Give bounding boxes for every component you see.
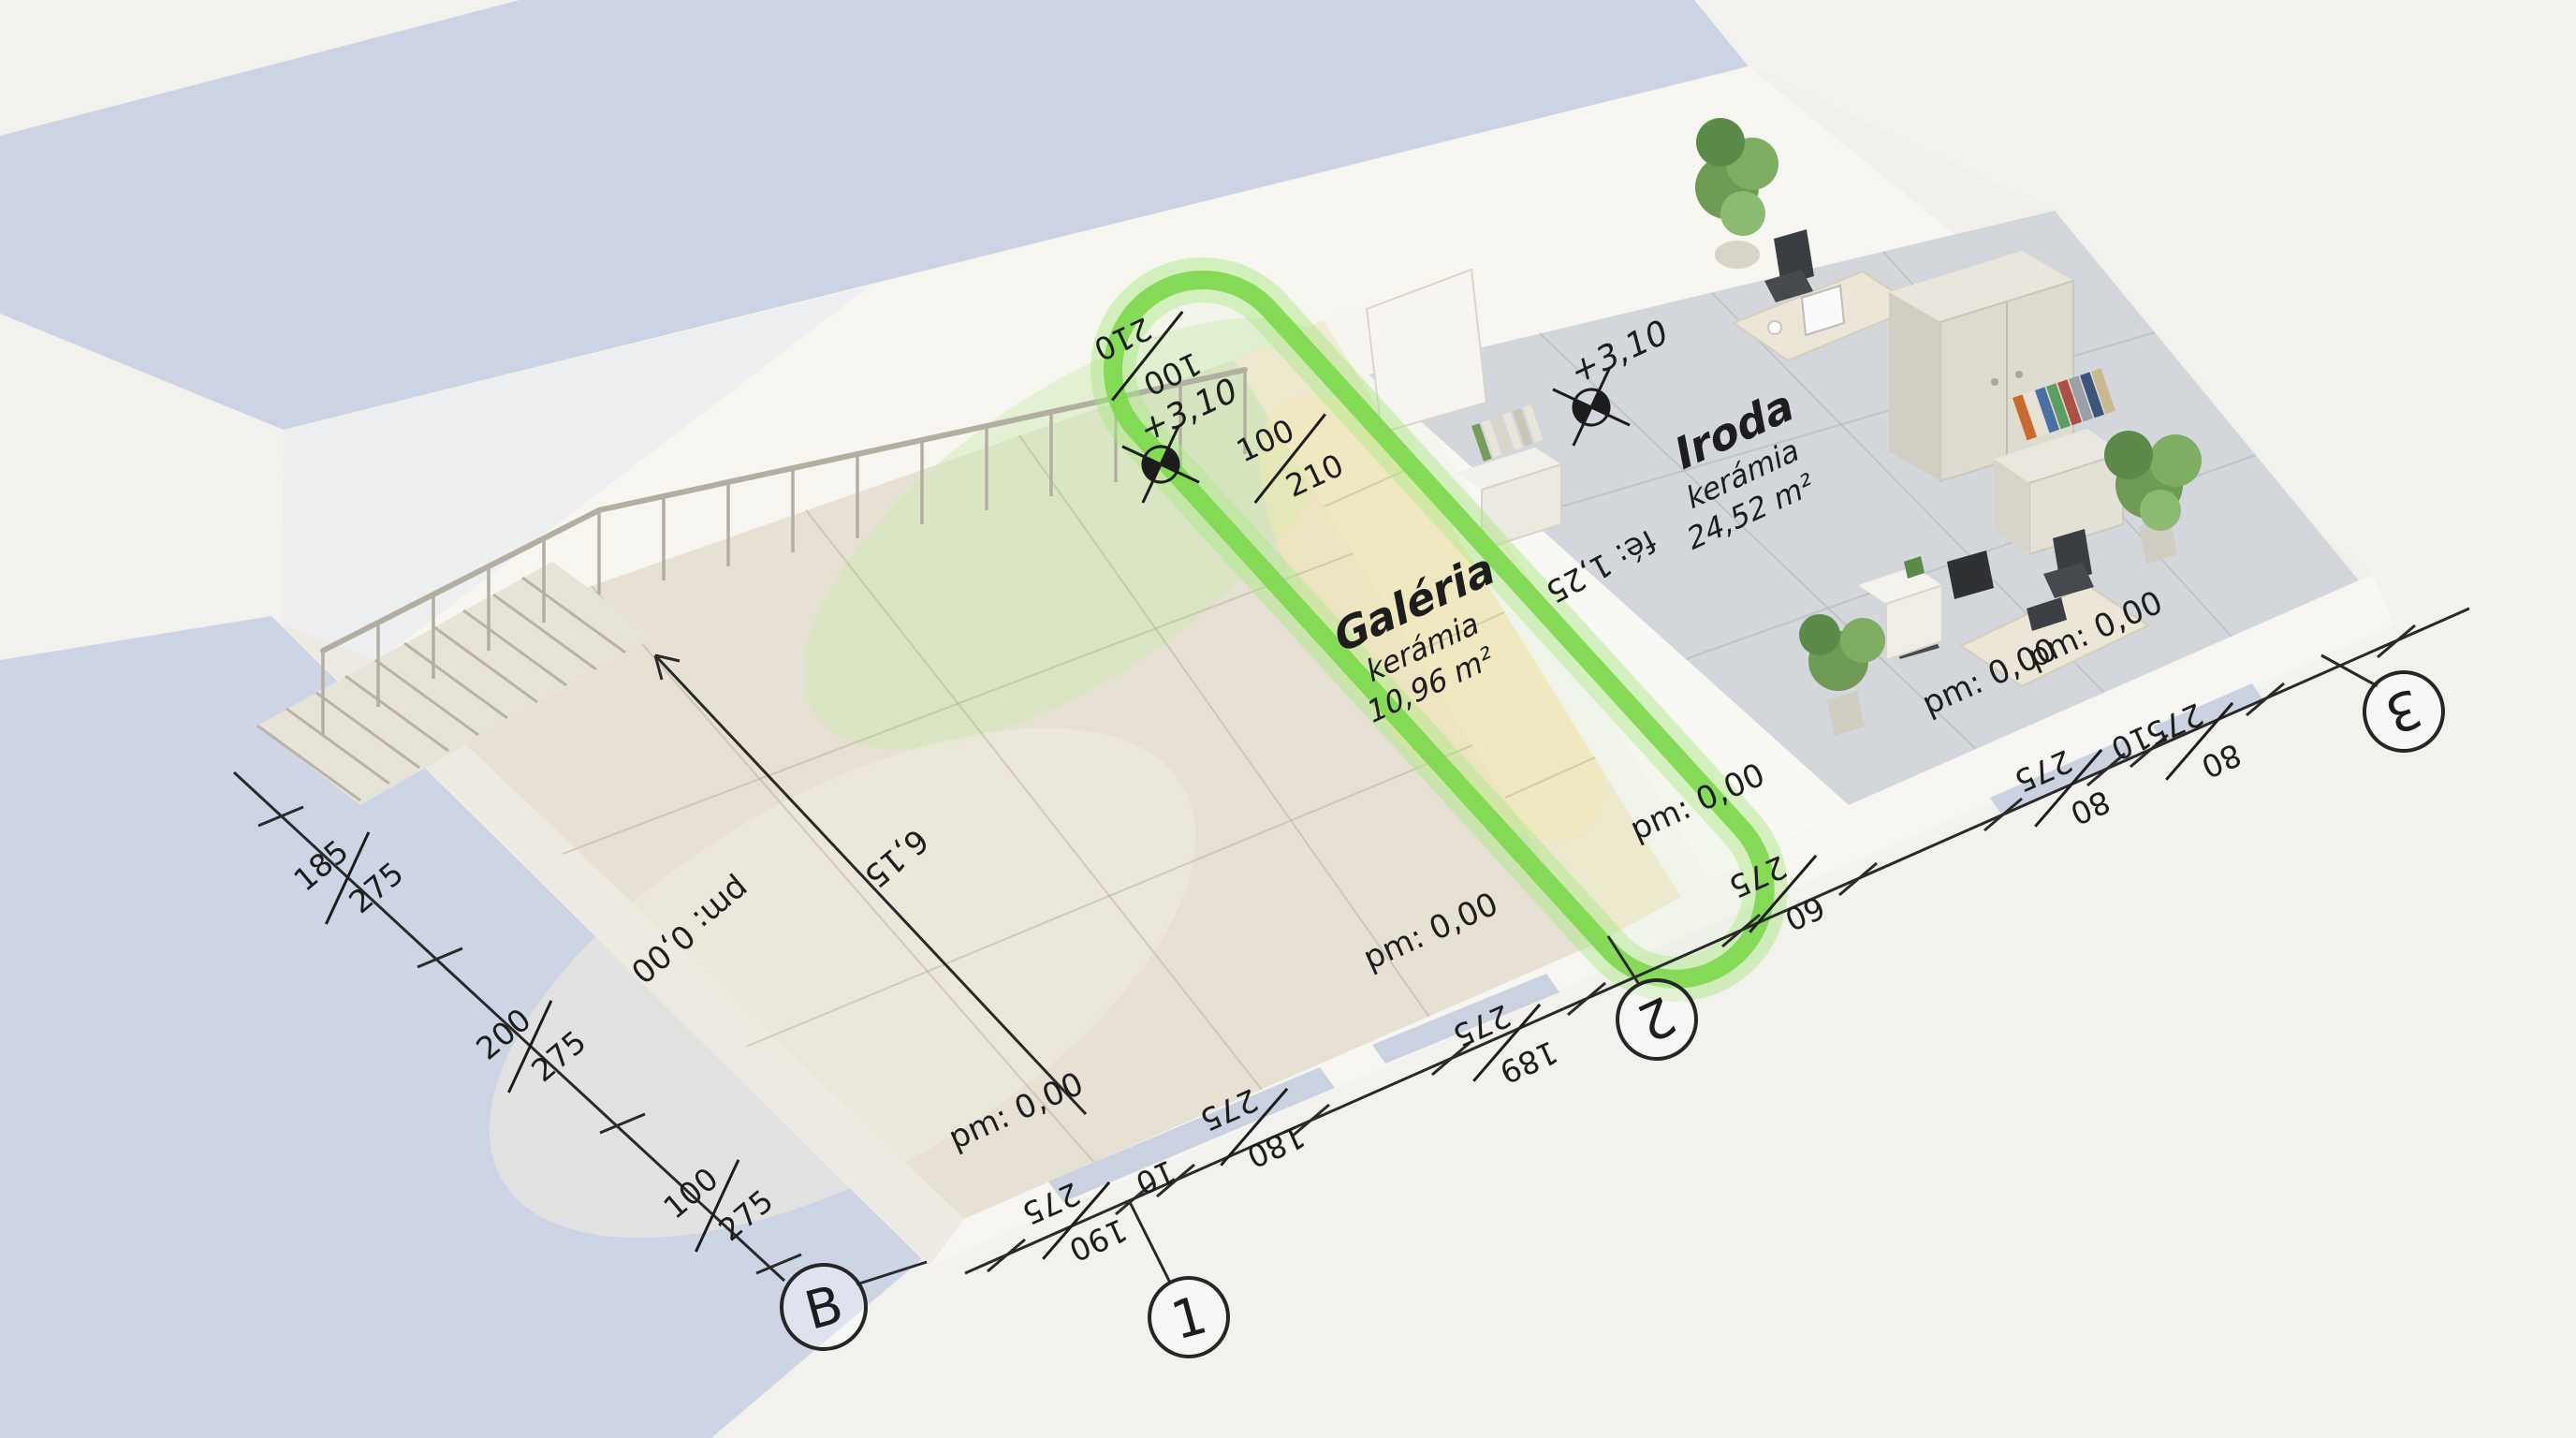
svg-text:180: 180 bbox=[1241, 1118, 1310, 1175]
grid-bubble-1: 1 bbox=[1129, 1200, 1228, 1357]
axonometric-scene: 6,15 Galéria kerámia 10,96 m² Iroda kerá… bbox=[0, 0, 2576, 1438]
svg-text:80: 80 bbox=[2065, 783, 2115, 832]
svg-text:80: 80 bbox=[2196, 736, 2247, 785]
svg-text:190: 190 bbox=[1063, 1211, 1132, 1269]
svg-text:189: 189 bbox=[1494, 1034, 1562, 1091]
grid-bubble-3: 3 bbox=[2321, 655, 2443, 751]
coffee-cup bbox=[1768, 321, 1781, 334]
floor-plan-render: 6,15 Galéria kerámia 10,96 m² Iroda kerá… bbox=[0, 0, 2576, 1438]
